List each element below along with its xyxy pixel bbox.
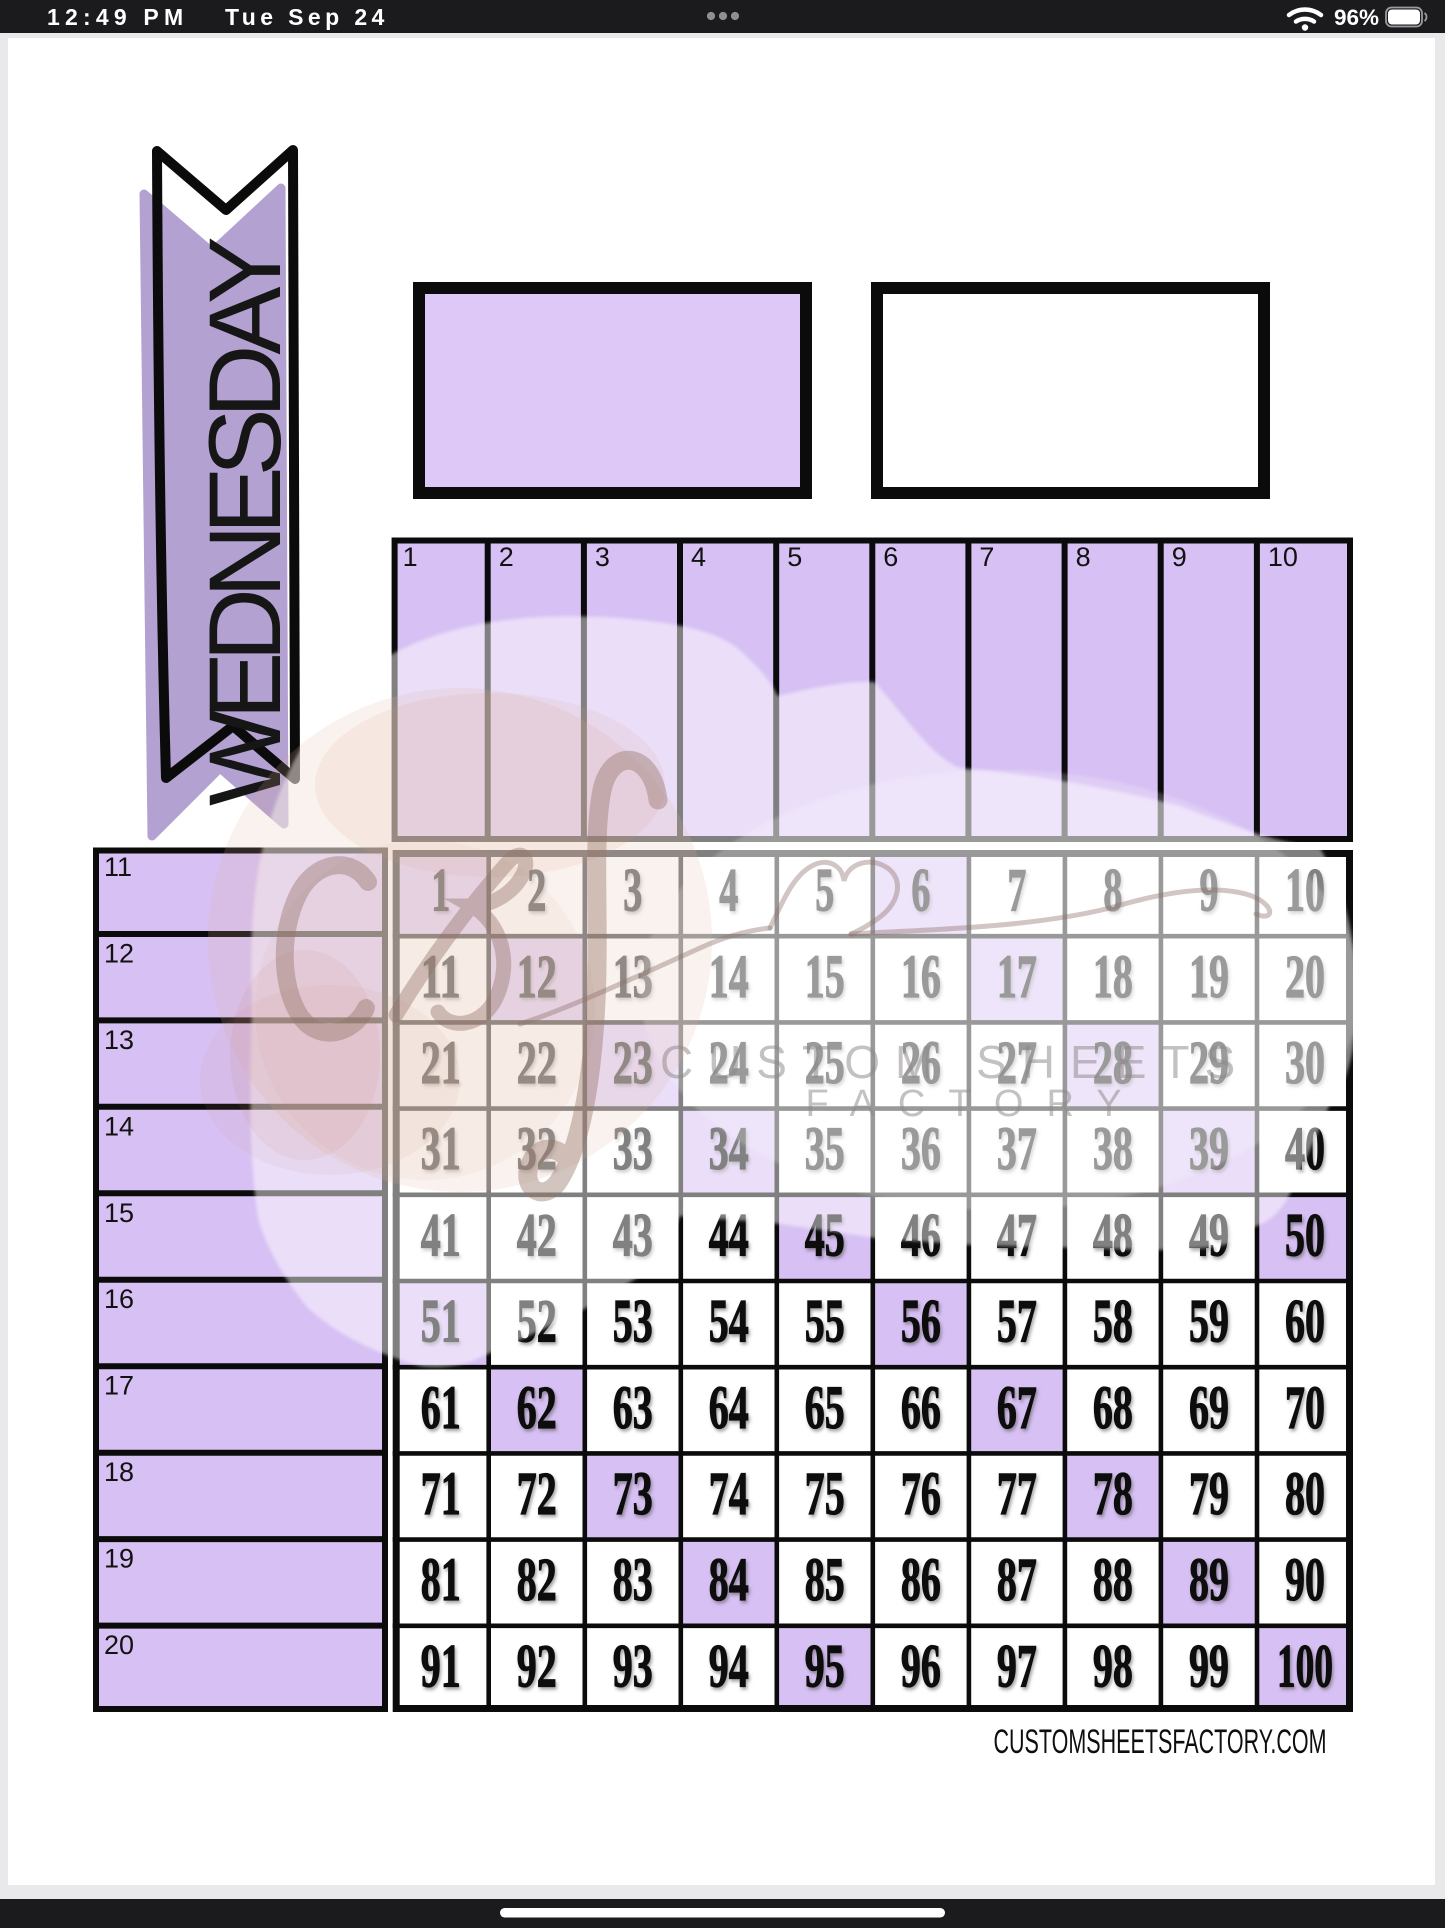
svg-text:12:49 PM: 12:49 PM <box>47 4 188 30</box>
svg-text:18: 18 <box>104 1457 134 1487</box>
svg-text:62: 62 <box>517 1375 557 1442</box>
svg-text:59: 59 <box>1189 1289 1229 1356</box>
svg-text:12: 12 <box>104 939 134 969</box>
svg-text:67: 67 <box>997 1375 1037 1442</box>
svg-text:CUSTOM SHEETS: CUSTOM SHEETS <box>660 1036 1250 1088</box>
svg-text:11: 11 <box>104 852 132 882</box>
svg-text:98: 98 <box>1093 1633 1133 1700</box>
svg-text:86: 86 <box>901 1547 941 1614</box>
svg-text:96%: 96% <box>1334 5 1379 30</box>
svg-text:83: 83 <box>613 1547 653 1614</box>
svg-text:60: 60 <box>1285 1289 1325 1356</box>
svg-text:FACTORY: FACTORY <box>805 1083 1144 1125</box>
svg-text:6: 6 <box>883 542 898 572</box>
svg-text:97: 97 <box>997 1633 1037 1700</box>
svg-text:69: 69 <box>1189 1375 1229 1442</box>
svg-text:91: 91 <box>421 1633 461 1700</box>
svg-text:88: 88 <box>1093 1547 1133 1614</box>
svg-text:100: 100 <box>1277 1633 1333 1700</box>
svg-text:81: 81 <box>421 1547 461 1614</box>
svg-text:3: 3 <box>595 542 610 572</box>
svg-text:Tue Sep 24: Tue Sep 24 <box>225 4 389 30</box>
svg-text:96: 96 <box>901 1633 941 1700</box>
svg-text:95: 95 <box>805 1633 845 1700</box>
svg-text:WEDNESDAY: WEDNESDAY <box>188 238 302 806</box>
svg-text:16: 16 <box>104 1284 134 1314</box>
svg-text:64: 64 <box>709 1375 749 1442</box>
svg-text:7: 7 <box>979 542 994 572</box>
svg-text:84: 84 <box>709 1547 749 1614</box>
svg-text:79: 79 <box>1189 1461 1229 1528</box>
svg-text:99: 99 <box>1189 1633 1229 1700</box>
svg-text:63: 63 <box>613 1375 653 1442</box>
svg-text:53: 53 <box>613 1289 653 1356</box>
svg-text:55: 55 <box>805 1289 845 1356</box>
svg-text:94: 94 <box>709 1633 749 1700</box>
svg-text:57: 57 <box>997 1289 1037 1356</box>
svg-text:90: 90 <box>1285 1547 1325 1614</box>
svg-text:19: 19 <box>104 1544 134 1574</box>
svg-text:72: 72 <box>517 1461 557 1528</box>
svg-text:54: 54 <box>709 1289 749 1356</box>
svg-text:74: 74 <box>709 1461 749 1528</box>
svg-text:73: 73 <box>613 1461 653 1528</box>
svg-text:CUSTOMSHEETSFACTORY.COM: CUSTOMSHEETSFACTORY.COM <box>994 1723 1327 1761</box>
svg-text:9: 9 <box>1172 542 1187 572</box>
svg-text:13: 13 <box>104 1025 134 1055</box>
svg-text:15: 15 <box>104 1198 134 1228</box>
svg-text:17: 17 <box>104 1371 134 1401</box>
svg-text:92: 92 <box>517 1633 557 1700</box>
svg-text:10: 10 <box>1268 542 1298 572</box>
svg-text:56: 56 <box>901 1289 941 1356</box>
svg-text:58: 58 <box>1093 1289 1133 1356</box>
svg-text:89: 89 <box>1189 1547 1229 1614</box>
svg-text:8: 8 <box>1076 542 1091 572</box>
svg-text:66: 66 <box>901 1375 941 1442</box>
svg-text:70: 70 <box>1285 1375 1325 1442</box>
svg-text:71: 71 <box>421 1461 461 1528</box>
svg-text:77: 77 <box>997 1461 1037 1528</box>
svg-text:78: 78 <box>1093 1461 1133 1528</box>
svg-text:93: 93 <box>613 1633 653 1700</box>
svg-text:85: 85 <box>805 1547 845 1614</box>
svg-text:5: 5 <box>787 542 802 572</box>
svg-text:4: 4 <box>691 542 706 572</box>
svg-text:82: 82 <box>517 1547 557 1614</box>
svg-text:80: 80 <box>1285 1461 1325 1528</box>
svg-text:20: 20 <box>104 1630 134 1660</box>
svg-text:75: 75 <box>805 1461 845 1528</box>
svg-text:65: 65 <box>805 1375 845 1442</box>
svg-text:68: 68 <box>1093 1375 1133 1442</box>
svg-text:14: 14 <box>104 1111 134 1141</box>
svg-text:87: 87 <box>997 1547 1037 1614</box>
svg-text:50: 50 <box>1285 1202 1325 1269</box>
svg-text:1: 1 <box>403 542 418 572</box>
svg-text:2: 2 <box>499 542 514 572</box>
svg-text:76: 76 <box>901 1461 941 1528</box>
svg-text:61: 61 <box>421 1375 461 1442</box>
